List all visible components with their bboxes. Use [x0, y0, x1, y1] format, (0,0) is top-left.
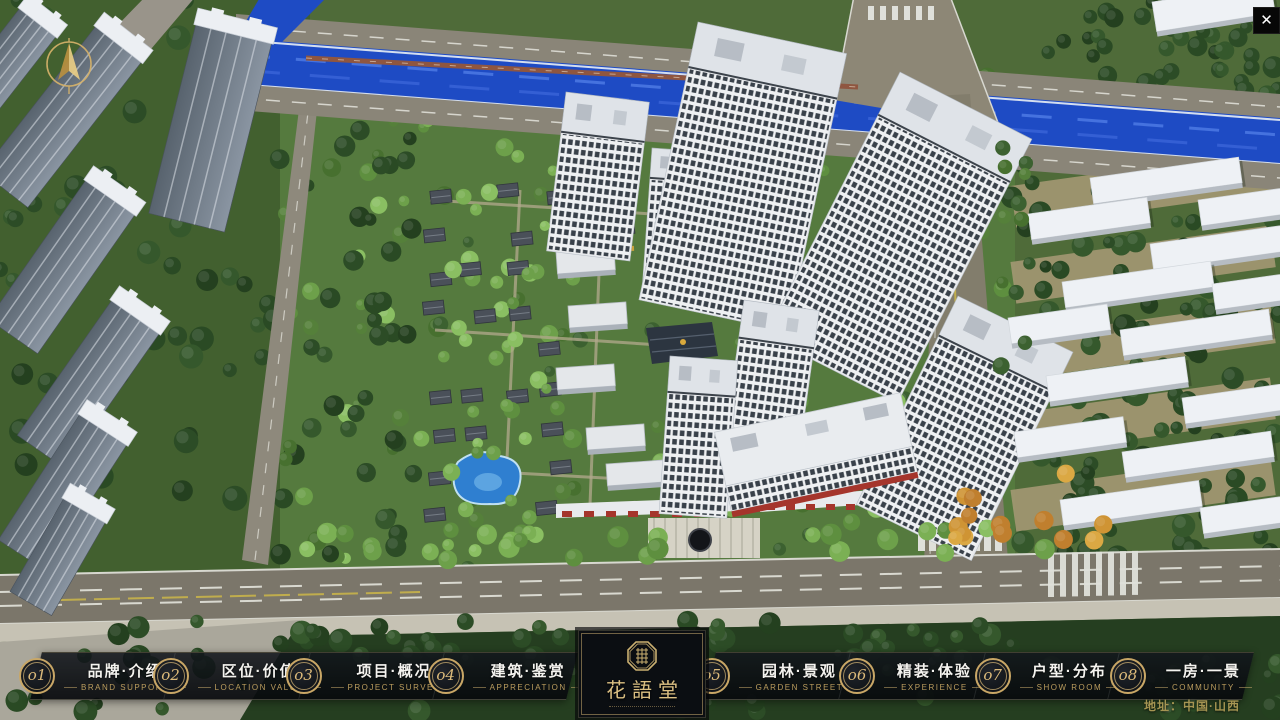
compass-icon: [42, 36, 96, 96]
item-number-badge: o6: [839, 658, 875, 694]
nav-item-floorplan-distribution[interactable]: o7 户型·分布 SHOW ROOM: [974, 653, 1120, 699]
masterplan-render[interactable]: [0, 0, 1280, 720]
masterplan-canvas: [0, 0, 1280, 720]
caption-rule: [1239, 687, 1252, 688]
nav-item-title: 建筑·鉴赏: [490, 660, 565, 681]
nav-band-right: o5 园林·景观 GARDEN STREET o6 精装·体验 EXPERIEN…: [704, 652, 1254, 700]
caption-rule: [64, 687, 77, 688]
nav-band-left: o1 品牌·介绍 BRAND SUPPORT o2 区位·价值 LOCATION…: [30, 652, 578, 700]
caption-rule: [198, 687, 211, 688]
nav-item-title: 精装·体验: [897, 660, 972, 681]
logo-rule: [609, 706, 675, 707]
caption-rule: [330, 687, 343, 688]
caption-rule: [472, 687, 485, 688]
item-number-badge: o3: [285, 658, 321, 694]
nav-item-caption: APPRECIATION: [489, 683, 566, 692]
nav-item-caption: PROJECT SURVEY: [347, 683, 440, 692]
nav-item-title: 项目·概况: [356, 660, 431, 681]
caption-rule: [1019, 687, 1032, 688]
nav-item-title: 园林·景观: [762, 660, 837, 681]
nav-item-interior-experience[interactable]: o6 精装·体验 EXPERIENCE: [839, 653, 985, 699]
nav-item-project-overview[interactable]: o3 项目·概况 PROJECT SURVEY: [299, 653, 445, 699]
close-icon: ✕: [1260, 13, 1273, 28]
nav-item-garden-landscape[interactable]: o5 园林·景观 GARDEN STREET: [704, 653, 850, 699]
logo-name: 花語堂: [600, 674, 684, 703]
project-address: 地址：中国·山西: [1144, 697, 1240, 714]
nav-item-title: 品牌·介绍: [88, 660, 163, 681]
caption-rule: [739, 687, 752, 688]
nav-item-caption: EXPERIENCE: [901, 683, 968, 692]
item-number-badge: o2: [153, 658, 189, 694]
nav-item-caption: SHOW ROOM: [1036, 683, 1102, 692]
nav-item-room-view[interactable]: o8 一房·一景 COMMUNITY: [1109, 653, 1254, 699]
nav-item-caption: COMMUNITY: [1172, 683, 1235, 692]
item-number-badge: o4: [427, 658, 463, 694]
caption-rule: [884, 687, 897, 688]
nav-item-caption: GARDEN STREET: [756, 683, 844, 692]
octagon-seal-icon: [627, 641, 657, 671]
caption-rule: [1155, 687, 1168, 688]
item-number-badge: o7: [974, 658, 1010, 694]
close-button[interactable]: ✕: [1253, 7, 1280, 34]
nav-item-title: 户型·分布: [1031, 660, 1106, 681]
item-number-badge: o1: [19, 658, 55, 694]
logo-panel[interactable]: 花語堂: [578, 630, 706, 718]
nav-item-title: 一房·一景: [1166, 660, 1241, 681]
item-number-badge: o8: [1110, 658, 1146, 694]
nav-item-architecture[interactable]: o4 建筑·鉴赏 APPRECIATION: [433, 653, 578, 699]
